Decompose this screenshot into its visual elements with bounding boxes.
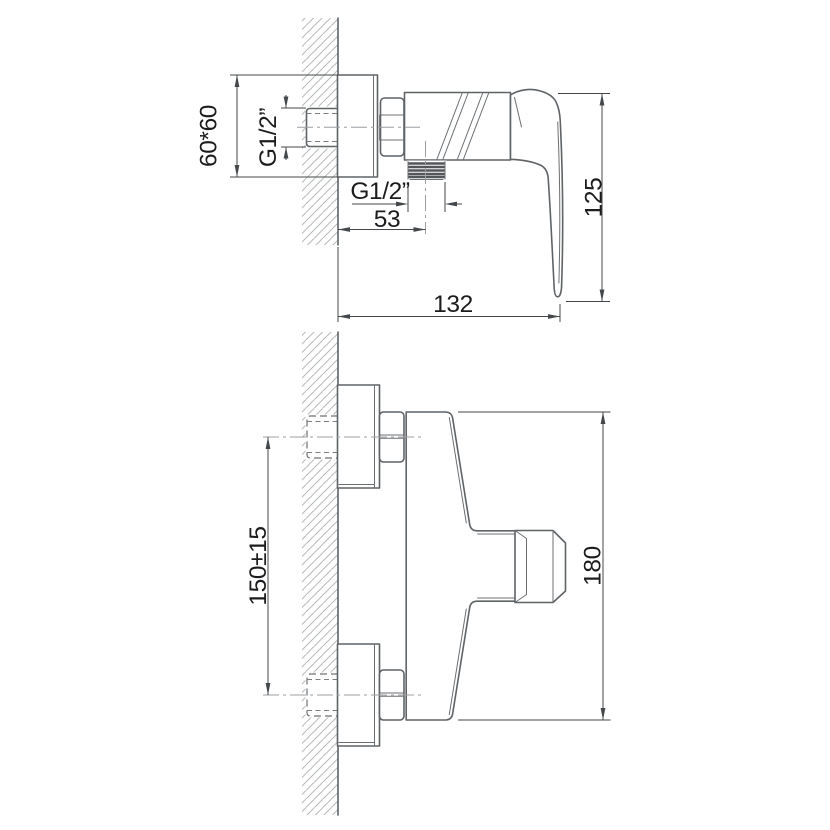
dim-total-depth: 132 bbox=[338, 247, 560, 322]
technical-drawing: 60*60 G1/2” G1/2” 53 132 bbox=[0, 0, 830, 830]
side-view: 60*60 G1/2” G1/2” 53 132 bbox=[196, 18, 611, 322]
dim-outlet-offset: 53 bbox=[338, 206, 426, 233]
outlet-thread bbox=[407, 161, 447, 181]
dim-total-depth-label: 132 bbox=[433, 291, 473, 318]
dim-total-height-label: 180 bbox=[580, 546, 607, 586]
dim-handle-drop: 125 bbox=[558, 94, 610, 302]
dim-outlet-thread: G1/2” bbox=[350, 178, 462, 212]
handle-lever bbox=[511, 89, 563, 296]
handle-knob bbox=[515, 531, 566, 603]
mixer-body bbox=[405, 93, 518, 161]
dim-outlet-offset-label: 53 bbox=[374, 206, 400, 233]
dim-handle-drop-label: 125 bbox=[581, 178, 608, 218]
dim-inlet-spacing: 150±15 bbox=[245, 437, 272, 695]
wall-hatch bbox=[302, 332, 338, 815]
dim-plate-label: 60*60 bbox=[196, 105, 223, 167]
dim-outlet-thread-label: G1/2” bbox=[350, 178, 410, 205]
wall-flange bbox=[338, 75, 378, 177]
dim-inlet-thread-label: G1/2” bbox=[255, 108, 282, 168]
mixer-body-front bbox=[406, 412, 515, 720]
dim-inlet-thread: G1/2” bbox=[255, 95, 306, 167]
dim-inlet-spacing-label: 150±15 bbox=[245, 526, 272, 605]
drawing-page: 60*60 G1/2” G1/2” 53 132 bbox=[0, 0, 830, 830]
front-view: 150±15 180 bbox=[245, 332, 611, 815]
